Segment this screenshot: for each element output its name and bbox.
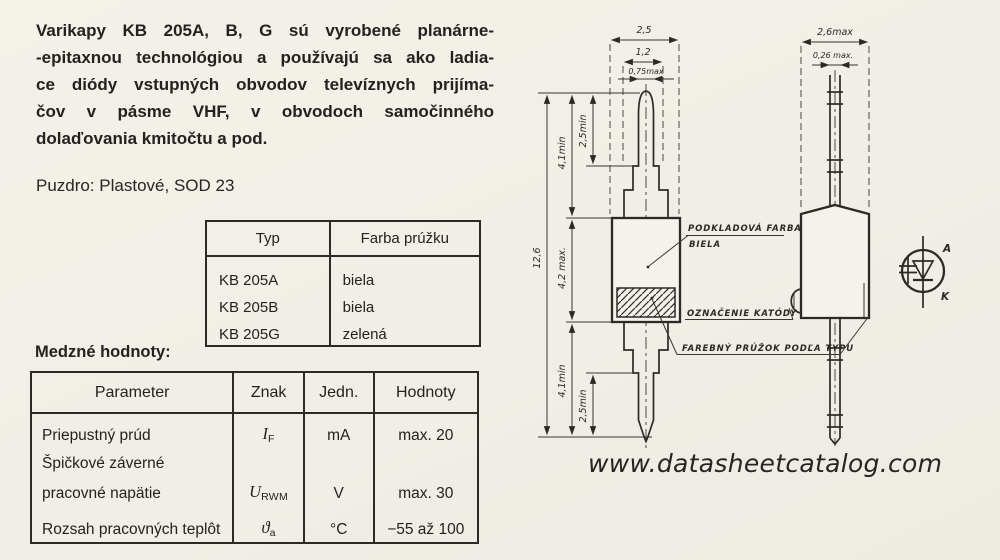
front-view: 12,6 4,1min 4,2 max. 4,1min 2,5min 2,5mi… <box>532 25 680 452</box>
cathode-label: K <box>941 291 950 303</box>
parameter-cell: Rozsah pracovných teplôt <box>31 506 233 543</box>
type-table: Typ Farba prúžku KB 205A biela KB 205B b… <box>205 220 481 347</box>
dim-lead-min-bottom: 2,5min <box>578 389 589 422</box>
farba-cell: biela <box>330 256 480 291</box>
dim-lead-min-top: 2,5min <box>578 114 589 147</box>
farba-cell: biela <box>330 291 480 318</box>
anode-label: A <box>942 243 951 255</box>
limits-header-znak: Znak <box>233 372 304 413</box>
symbol: U <box>249 482 261 501</box>
intro-paragraph: Varikapy KB 205A, B, G sú vyrobené planá… <box>36 17 494 152</box>
label-cathode-marking: OZNAČENIE KATÓDY <box>687 307 797 319</box>
type-table-header-row: Typ Farba prúžku <box>206 221 480 256</box>
intro-line: Varikapy KB 205A, B, G sú vyrobené planá… <box>36 17 494 44</box>
package-body-side <box>801 205 869 318</box>
dim-body-width: 2,5 <box>636 25 651 36</box>
symbol-cell: IF <box>233 413 304 448</box>
unit-cell: V <box>304 476 374 506</box>
table-row: pracovné napätie URWM V max. 30 <box>31 476 478 506</box>
value-cell: −55 až 100 <box>374 506 478 543</box>
limits-heading: Medzné hodnoty: <box>35 343 171 362</box>
farba-cell: zelená <box>330 318 480 346</box>
table-row: KB 205A biela <box>206 256 480 291</box>
type-cell: KB 205A <box>206 256 330 291</box>
limits-header-row: Parameter Znak Jedn. Hodnoty <box>31 372 478 413</box>
limits-header-hodnoty: Hodnoty <box>374 372 478 413</box>
side-view: 2,6max 0,26 max. <box>791 27 869 446</box>
intro-line: -epitaxnou technológiou a používajú sa a… <box>36 44 494 71</box>
colour-stripe-hatch <box>617 288 675 317</box>
table-row: Špičkové záverné <box>31 448 478 476</box>
limits-header-jedn: Jedn. <box>304 372 374 413</box>
unit-cell: °C <box>304 506 374 543</box>
package-line: Puzdro: Plastové, SOD 23 <box>36 176 234 196</box>
intro-line: ce diódy vstupných obvodov televíznych p… <box>36 71 494 98</box>
label-colour-stripe: FAREBNÝ PRÚŽOK PODĽA TYPU <box>682 342 854 354</box>
parameter-cell: Špičkové záverné <box>31 448 233 476</box>
limits-header-parameter: Parameter <box>31 372 233 413</box>
type-table-header-typ: Typ <box>206 221 330 256</box>
dim-body-length: 4,2 max. <box>557 247 568 289</box>
table-row: Rozsah pracovných teplôt ϑa °C −55 až 10… <box>31 506 478 543</box>
value-cell: max. 20 <box>374 413 478 448</box>
intro-line: čov v pásme VHF, v obvodoch samočinného <box>36 98 494 125</box>
dim-overall-length: 12,6 <box>532 247 543 268</box>
table-row: Priepustný prúd IF mA max. 20 <box>31 413 478 448</box>
label-base-colour-line2: BIELA <box>689 240 721 250</box>
varicap-symbol-icon: A K <box>899 236 951 308</box>
type-table-header-farba: Farba prúžku <box>330 221 480 256</box>
table-row: KB 205G zelená <box>206 318 480 346</box>
parameter-cell: Priepustný prúd <box>31 413 233 448</box>
symbol-cell: ϑa <box>233 506 304 543</box>
table-row: KB 205B biela <box>206 291 480 318</box>
type-cell: KB 205G <box>206 318 330 346</box>
dim-lead-thickness: 0,26 max. <box>813 51 853 60</box>
dim-lead-bottom: 4,1min <box>557 364 568 397</box>
dim-lead-shoulder-width: 1,2 <box>635 47 650 58</box>
intro-line: dolaďovania kmitočtu a pod. <box>36 125 494 152</box>
website-text: www.datasheetcatalog.com <box>588 449 942 478</box>
symbol: ϑ <box>261 518 269 537</box>
dim-body-depth: 2,6max <box>817 27 853 38</box>
symbol-subscript: a <box>270 527 276 539</box>
symbol-subscript: RWM <box>261 491 288 503</box>
parameter-cell: pracovné napätie <box>31 476 233 506</box>
symbol-subscript: F <box>268 433 275 445</box>
label-base-colour-line1: PODKLADOVÁ FARBA <box>688 222 802 234</box>
dim-lead-tip-width: 0,75max <box>628 67 664 76</box>
unit-cell: mA <box>304 413 374 448</box>
dim-lead-top: 4,1min <box>557 136 568 169</box>
symbol-cell: URWM <box>233 476 304 506</box>
value-cell: max. 30 <box>374 476 478 506</box>
limits-table: Parameter Znak Jedn. Hodnoty Priepustný … <box>30 371 479 544</box>
type-cell: KB 205B <box>206 291 330 318</box>
